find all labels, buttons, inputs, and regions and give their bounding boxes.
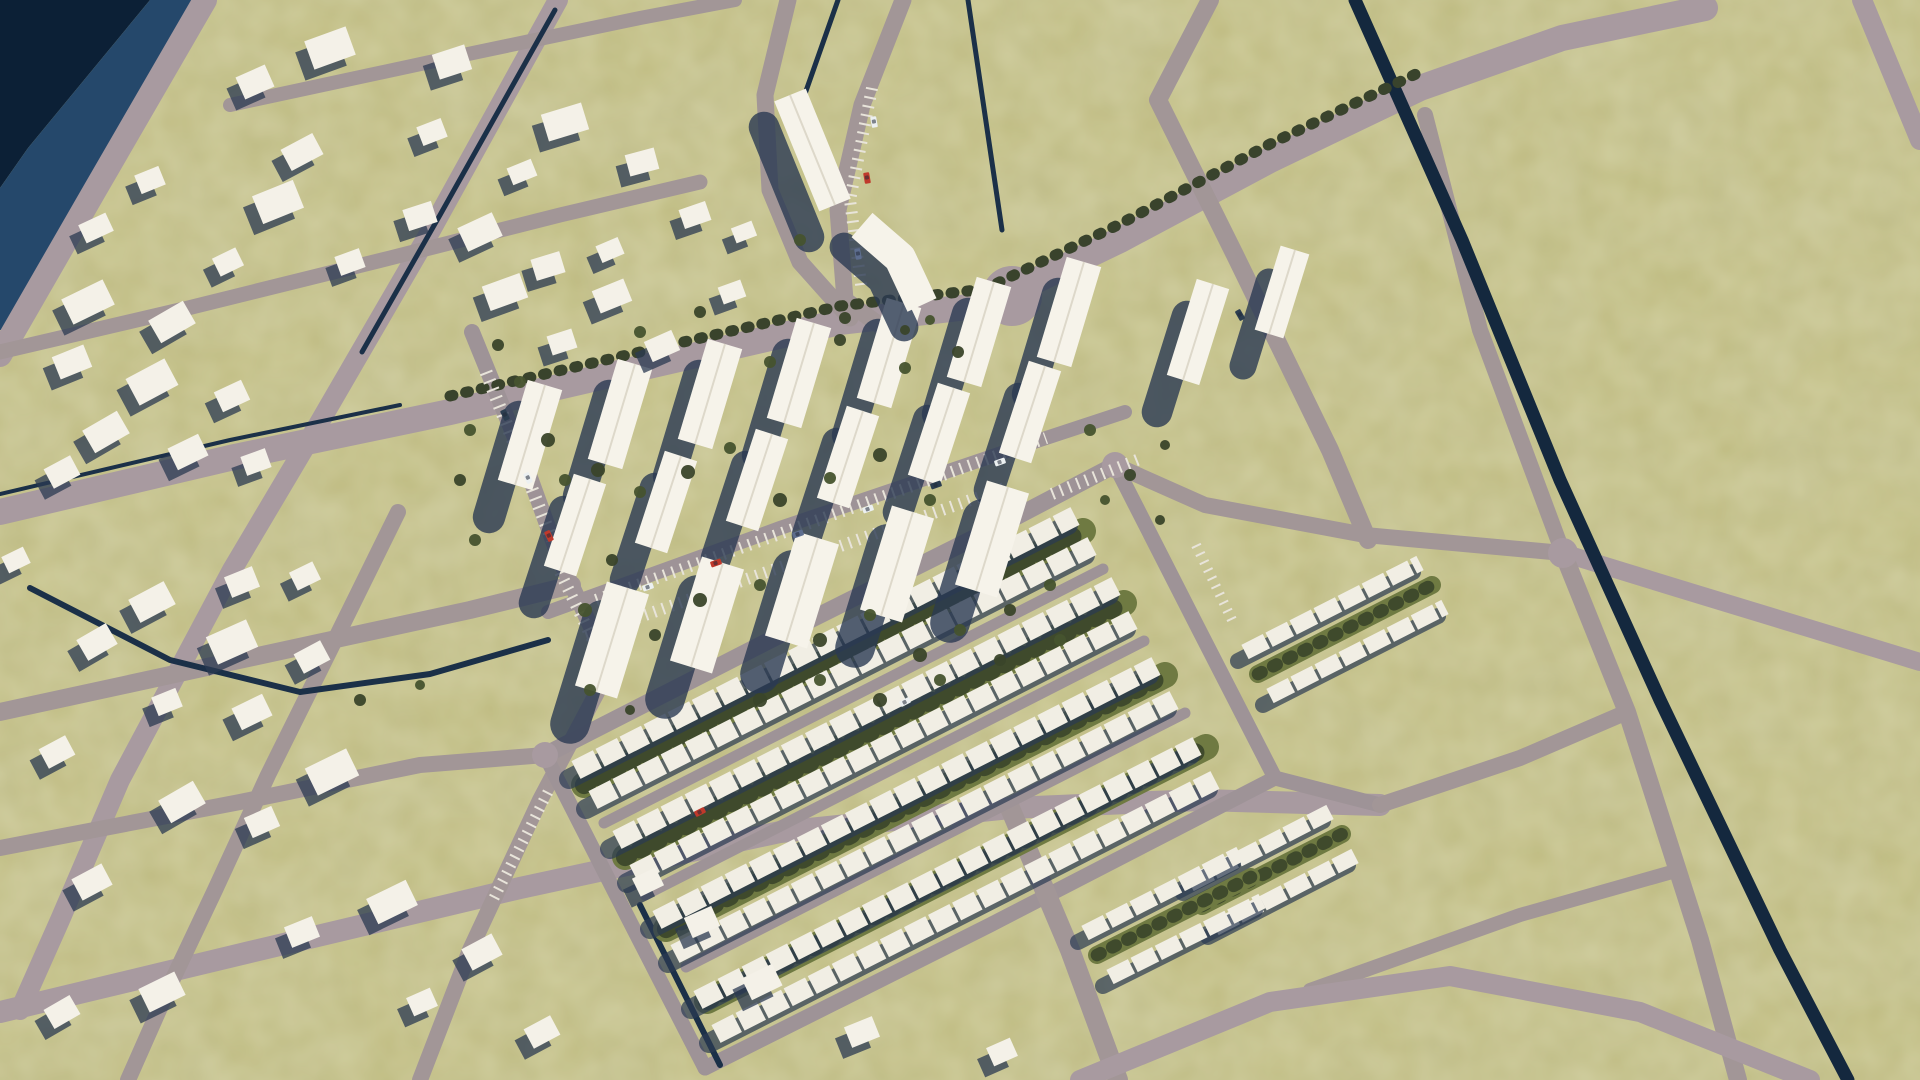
road-junction [1548,538,1578,568]
tree [514,376,526,388]
tree [1100,495,1110,505]
tree [541,433,555,447]
tree [824,472,836,484]
tree [1044,579,1056,591]
tree [753,693,767,707]
tree [764,356,776,368]
tree [934,674,946,686]
tree [954,624,966,636]
tree [606,554,618,566]
tree [1054,634,1066,646]
tree [834,334,846,346]
tree [591,463,605,477]
tree [899,362,911,374]
tree [1004,604,1016,616]
tree [1124,469,1136,481]
tree [1160,440,1170,450]
tree [693,593,707,607]
masterplan-viewport [0,0,1920,1080]
tree [900,325,910,335]
tree [454,474,466,486]
tree [773,493,787,507]
tree [559,474,571,486]
tree [794,234,806,246]
tree [634,326,646,338]
tree [1155,515,1165,525]
tree [681,465,695,479]
tree [578,603,592,617]
tree [924,494,936,506]
tree [754,579,766,591]
tree [584,684,596,696]
tree [724,442,736,454]
tree [469,534,481,546]
tree [694,306,706,318]
tree [813,633,827,647]
tree [925,315,935,325]
tree [864,609,876,621]
tree [873,693,887,707]
tree [415,680,425,690]
tree [952,346,964,358]
tree [464,424,476,436]
tree [354,694,366,706]
masterplan-aerial-render [0,0,1920,1080]
tree [634,486,646,498]
tree [625,705,635,715]
tree [994,654,1006,666]
road-junction [532,742,558,768]
tree [814,674,826,686]
tree [839,312,851,324]
tree [873,448,887,462]
tree [649,629,661,641]
car-windshield [872,119,877,124]
car-windshield [856,251,861,256]
tree [1084,424,1096,436]
tree [913,648,927,662]
car-windshield [865,175,870,180]
tree [492,339,504,351]
